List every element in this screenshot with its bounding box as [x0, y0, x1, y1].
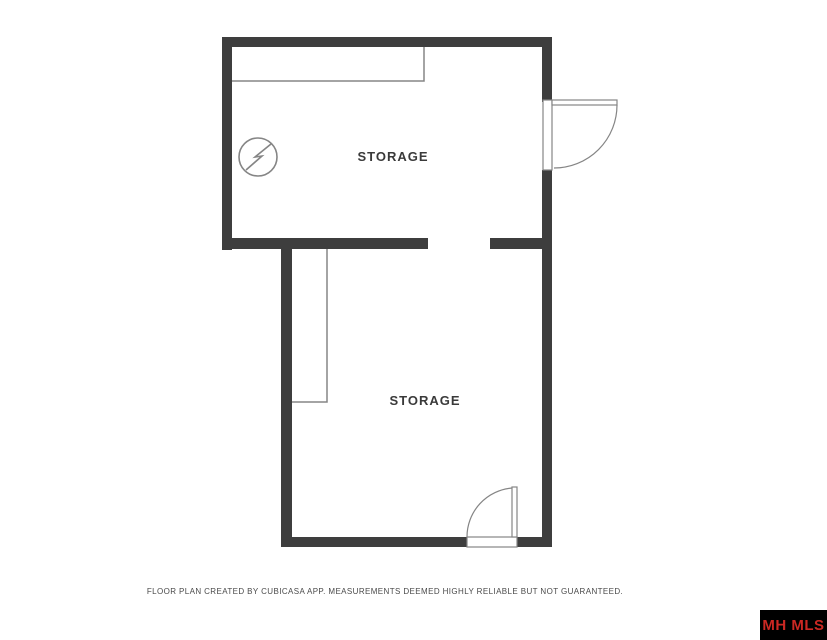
- door-top-swing-arc: [554, 105, 617, 168]
- door-bottom-swing-arc: [467, 488, 512, 537]
- wardrobe-outline-top: [232, 47, 424, 81]
- room-label-storage-top: STORAGE: [333, 149, 453, 164]
- electrical-switch-icon: [239, 138, 277, 176]
- floor-plan-page: STORAGE STORAGE FLOOR PLAN CREATED BY CU…: [0, 0, 827, 640]
- door-bottom-leaf: [512, 487, 517, 537]
- wall-middle-right: [490, 238, 552, 249]
- room-label-storage-bottom: STORAGE: [365, 393, 485, 408]
- mls-logo-badge: MH MLS: [760, 610, 827, 640]
- door-top-right: [543, 100, 617, 170]
- wall-right-upper: [542, 37, 552, 102]
- floor-plan-disclaimer: FLOOR PLAN CREATED BY CUBICASA APP. MEAS…: [0, 587, 770, 596]
- door-bottom: [467, 487, 517, 547]
- door-top-leaf: [552, 100, 617, 105]
- wall-right-lower: [542, 170, 552, 547]
- mls-logo-text: MH MLS: [762, 617, 824, 634]
- wall-middle-left: [222, 238, 428, 249]
- wall-left-upper: [222, 37, 232, 250]
- wall-bottom-left: [281, 537, 467, 547]
- door-bottom-frame: [467, 537, 517, 547]
- door-top-frame: [543, 100, 552, 170]
- floor-plan-drawing: [0, 0, 827, 640]
- walls: [222, 37, 552, 547]
- wall-left-lower: [281, 238, 292, 547]
- electrical-symbol-bolt: [246, 144, 271, 170]
- wall-bottom-right: [517, 537, 552, 547]
- wall-top: [222, 37, 552, 47]
- wardrobe-outline-bottom: [292, 249, 327, 402]
